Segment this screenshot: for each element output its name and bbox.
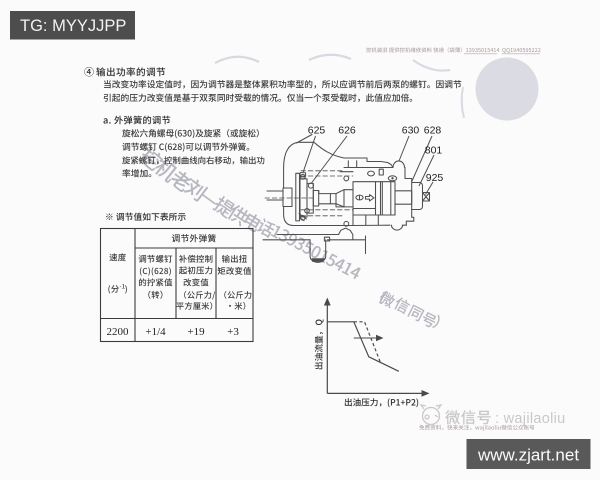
- svg-text:625: 625: [308, 125, 326, 137]
- svg-text:+3: +3: [227, 326, 239, 338]
- svg-text:801: 801: [425, 145, 443, 157]
- svg-text:: wajilaoliu: : wajilaoliu: [495, 411, 566, 427]
- svg-text:TG: MYYJJPP: TG: MYYJJPP: [20, 17, 126, 35]
- svg-text:630: 630: [402, 125, 420, 137]
- svg-text:925: 925: [426, 172, 444, 184]
- svg-text:+1/4: +1/4: [145, 326, 166, 338]
- svg-text:628: 628: [424, 125, 442, 137]
- svg-text:+19: +19: [187, 326, 205, 338]
- svg-text:2200: 2200: [107, 326, 130, 338]
- svg-text:www.zjart.net: www.zjart.net: [477, 446, 579, 465]
- svg-text:626: 626: [338, 125, 356, 137]
